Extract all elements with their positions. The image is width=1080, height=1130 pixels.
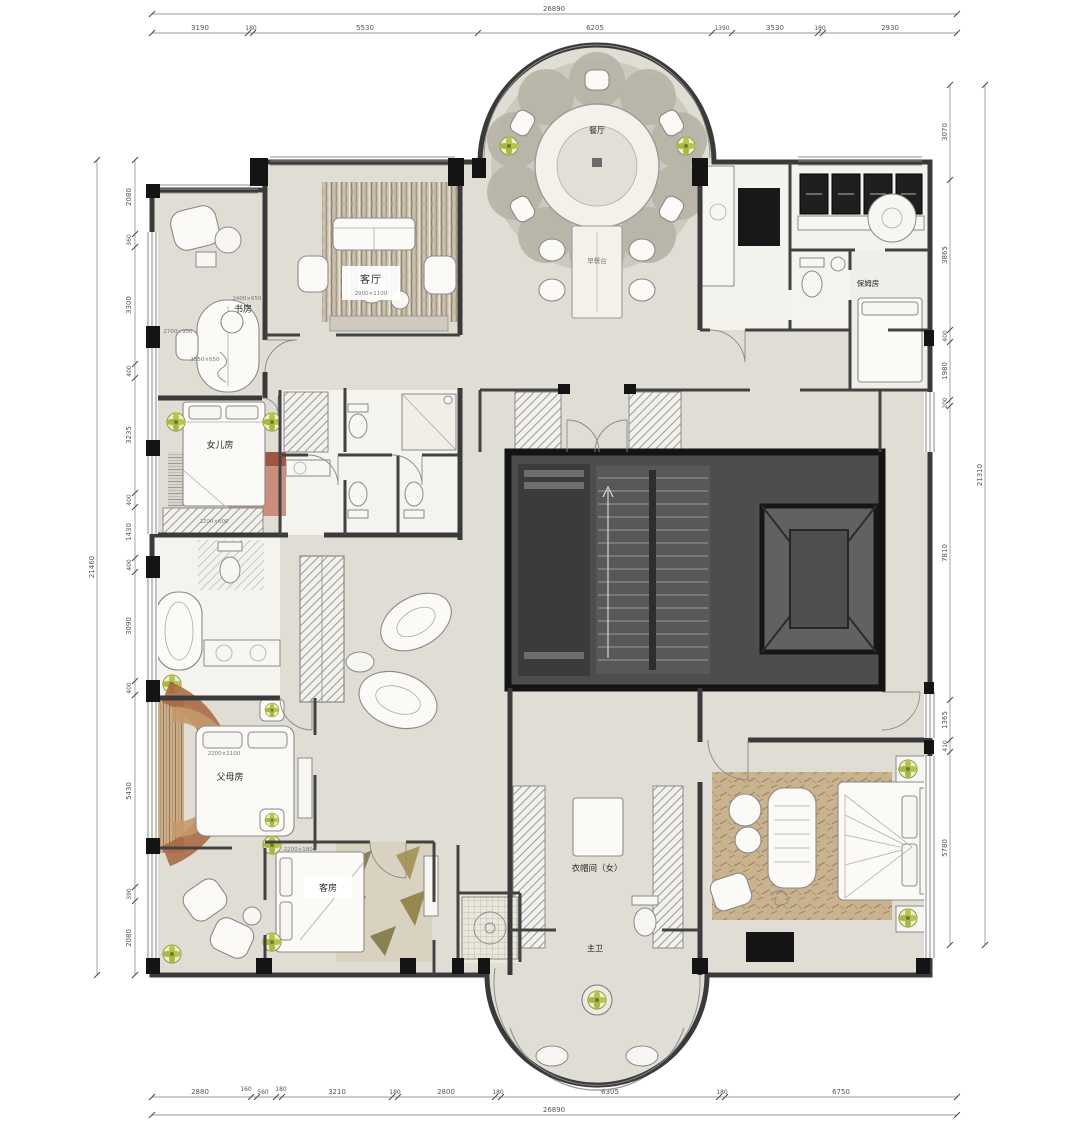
master-sofa — [768, 788, 816, 888]
living-size-label: 2900×1100 — [355, 291, 388, 297]
floor-plan-page: 26890 3190 180 5530 6205 1390 3530 180 2… — [0, 0, 1080, 1130]
room-label-dining: 餐厅 — [589, 126, 605, 135]
elevator-car — [790, 530, 848, 628]
living-armchair-right — [424, 256, 456, 294]
dim-left-seg-4: 3235 — [125, 426, 133, 444]
room-label-living: 客厅 — [360, 273, 382, 286]
bathtub — [156, 592, 202, 670]
dim-top-total: 26890 — [543, 5, 565, 13]
room-label-closet-female: 衣帽间（女） — [571, 863, 622, 874]
floor-plan-canvas: 26890 3190 180 5530 6205 1390 3530 180 2… — [0, 0, 1080, 1130]
dim-left-seg-12: 2080 — [125, 929, 133, 947]
parents-bed-label: 2200×2100 — [208, 751, 241, 757]
bath-closet — [284, 392, 328, 452]
dim-left-seg-7: 400 — [126, 559, 133, 571]
dim-top-seg-4: 1390 — [714, 25, 729, 32]
dim-right-seg-4: 200 — [942, 397, 949, 409]
dim-right-seg-3: 1980 — [941, 362, 949, 380]
master-armchair — [735, 827, 761, 853]
guest-room — [262, 835, 438, 962]
dining-centerpiece — [592, 158, 602, 167]
room-label-guest: 客房 — [319, 882, 337, 894]
living-tv-console — [330, 316, 448, 331]
study-side-table — [196, 252, 216, 267]
bedside-lamp-icon — [260, 809, 284, 831]
nanny-round-chair — [868, 194, 916, 242]
dim-top-seg-2: 5530 — [356, 24, 374, 32]
dim-bottom-seg-6: 2800 — [437, 1088, 455, 1096]
dim-bottom-seg-10: 6750 — [832, 1088, 850, 1096]
vestibule-closet-left — [515, 392, 561, 450]
dim-left-total: 21460 — [88, 556, 96, 578]
dim-left-seg-0: 2080 — [125, 188, 133, 206]
dim-bottom-seg-9: 180 — [716, 1089, 728, 1096]
daughter-wardrobe-label: 2200×600 — [199, 519, 229, 525]
dim-top-seg-3: 6205 — [586, 24, 604, 32]
dim-top-seg-5: 3530 — [766, 24, 784, 32]
dim-bottom-seg-2: 560 — [257, 1089, 269, 1096]
dim-top-seg-0: 3190 — [191, 24, 209, 32]
central-core — [508, 452, 882, 688]
dim-right-seg-2: 400 — [942, 330, 949, 342]
dim-top-seg-7: 2930 — [881, 24, 899, 32]
daughter-room — [163, 402, 286, 534]
bath-vanity — [286, 460, 330, 476]
toilet-tank — [632, 896, 658, 905]
dim-bottom-seg-3: 180 — [275, 1086, 287, 1093]
toilet-bowl — [405, 482, 423, 506]
room-label-master-bath: 主卫 — [587, 943, 603, 953]
study-sofa-label: 1550×650 — [190, 357, 220, 363]
room-label-parents: 父母房 — [216, 771, 243, 783]
dim-left-seg-9: 400 — [126, 682, 133, 694]
toilet-tank — [404, 510, 424, 518]
study-plant-pot — [215, 227, 241, 253]
toilet-bowl — [220, 557, 240, 583]
vestibule-closet-right — [629, 392, 681, 450]
kidney-table — [346, 652, 374, 672]
dim-right-seg-1: 3865 — [941, 246, 949, 264]
dim-top-seg-1: 180 — [245, 25, 257, 32]
basin — [626, 1046, 658, 1066]
dim-left-seg-5: 400 — [126, 494, 133, 506]
dim-left-seg-11: 390 — [126, 888, 133, 900]
toilet-tank — [218, 542, 242, 551]
dim-right-seg-0: 3070 — [941, 123, 949, 141]
closet-island — [573, 798, 623, 856]
living-armchair-left — [298, 256, 328, 292]
dim-left-seg-2: 3300 — [125, 296, 133, 314]
master-armchair — [729, 794, 761, 826]
dim-right-seg-6: 1365 — [941, 711, 949, 729]
dim-bottom-total: 26890 — [543, 1106, 565, 1114]
room-label-nanny: 保姆房 — [857, 278, 880, 288]
dim-right-seg-7: 410 — [942, 740, 949, 752]
lounge-table — [243, 907, 261, 925]
wc-basin — [831, 257, 845, 271]
toilet-tank — [800, 258, 824, 267]
dim-right-total: 21310 — [976, 464, 984, 486]
dim-left-seg-6: 1430 — [125, 523, 133, 541]
shower-head — [444, 396, 452, 404]
core-shaft-left — [518, 464, 590, 676]
building-plan: 餐厅 早餐台 客厅 2900×1100 书房 2400×650 2700×900… — [146, 45, 936, 1090]
pantry-appliance — [738, 188, 780, 246]
dim-bottom-seg-7: 180 — [492, 1089, 504, 1096]
toilet-tank — [348, 510, 368, 518]
dim-bottom-seg-1: 160 — [240, 1086, 252, 1093]
room-label-study: 书房 — [234, 303, 252, 315]
parents-tv-unit — [298, 758, 312, 818]
guest-bed-label: 2200×1800 — [284, 847, 317, 853]
dim-bottom-seg-0: 2880 — [191, 1088, 209, 1096]
guest-console — [424, 856, 438, 916]
dim-right-seg-8: 5780 — [941, 839, 949, 857]
dim-right-seg-5: 7810 — [941, 544, 949, 562]
dim-left-seg-10: 5430 — [125, 782, 133, 800]
double-vanity — [204, 640, 280, 666]
toilet-bowl — [802, 271, 822, 297]
toilet-bowl — [634, 908, 656, 936]
toilet-tank — [348, 404, 368, 412]
dim-top-seg-6: 180 — [814, 25, 826, 32]
room-label-breakfast: 早餐台 — [587, 256, 607, 265]
room-label-daughter: 女儿房 — [206, 439, 233, 451]
study-desk-label: 2400×650 — [232, 296, 262, 302]
dim-bottom-seg-5: 180 — [389, 1089, 401, 1096]
basin — [536, 1046, 568, 1066]
dim-left-seg-1: 360 — [126, 234, 133, 246]
dim-left-seg-3: 400 — [126, 365, 133, 377]
master-tv-unit — [746, 932, 794, 962]
toilet-bowl — [349, 482, 367, 506]
dim-bottom-seg-4: 3210 — [328, 1088, 346, 1096]
closet-wardrobe-right — [653, 786, 683, 948]
toilet-bowl — [349, 414, 367, 438]
dim-left-seg-8: 3090 — [125, 617, 133, 635]
living-room — [298, 182, 460, 331]
stair-stringer — [649, 470, 656, 670]
study-chaise-label: 2700×900 — [163, 329, 193, 335]
